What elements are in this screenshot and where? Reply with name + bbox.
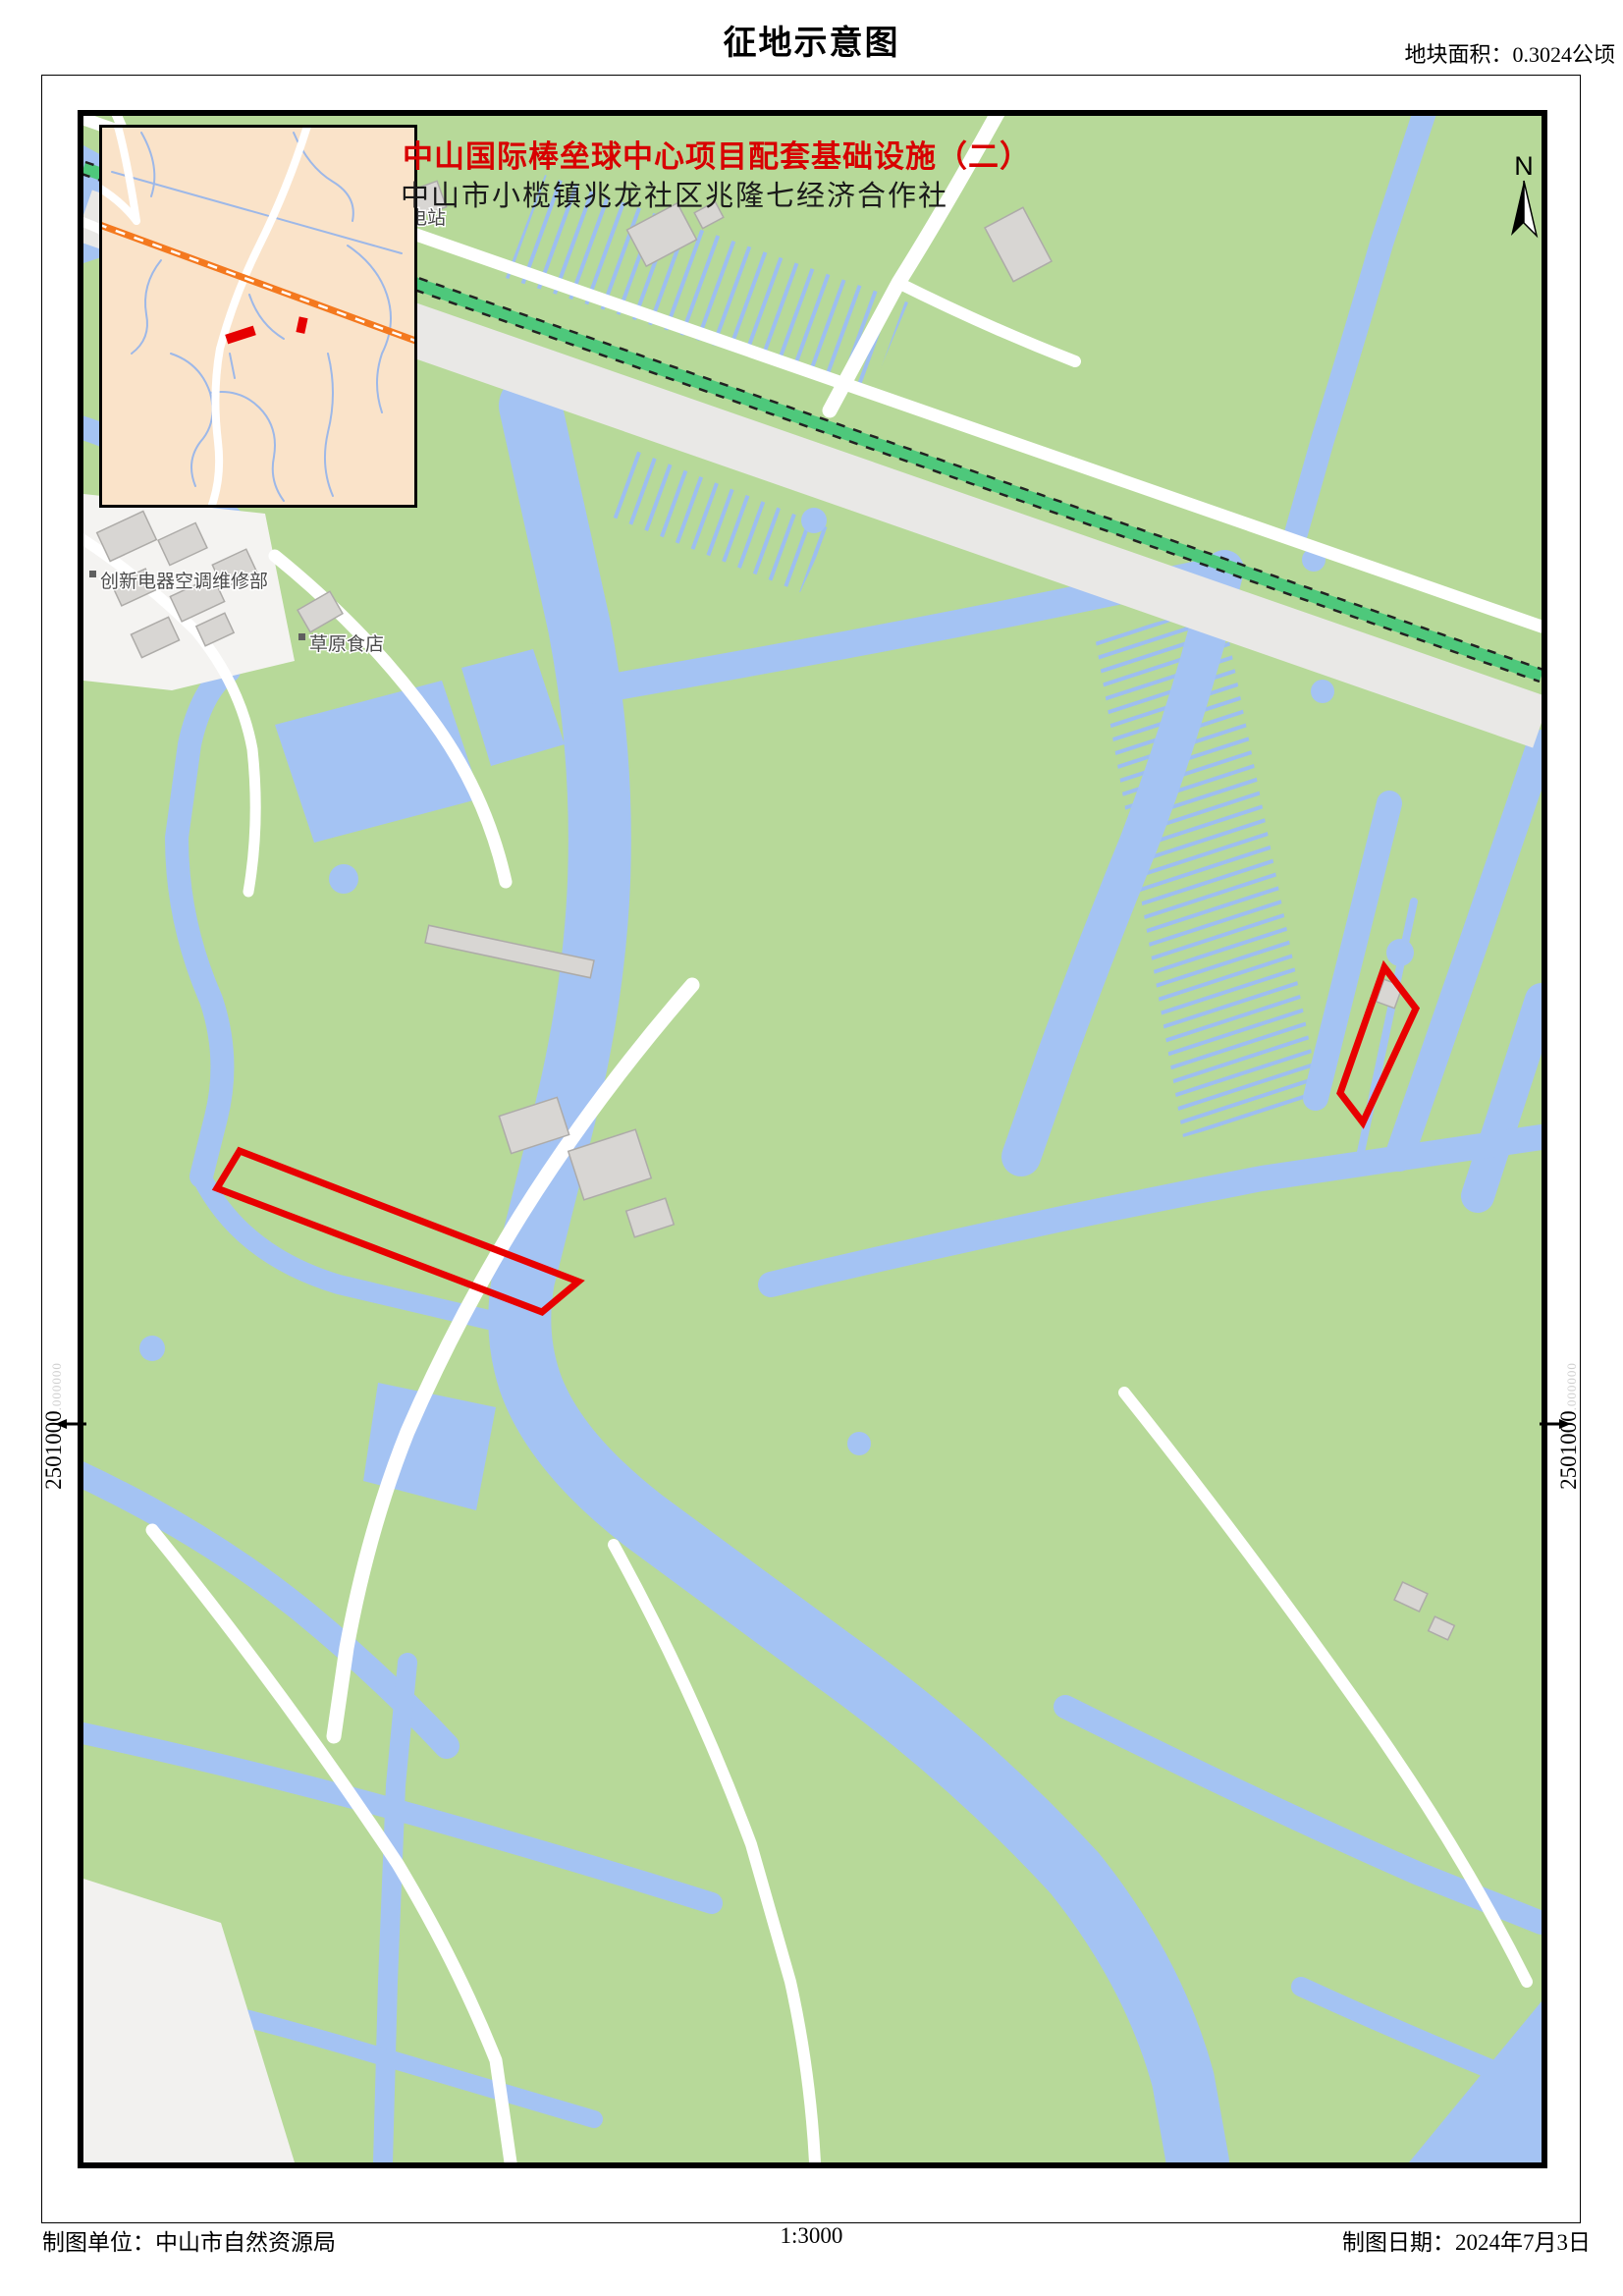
date-label: 制图日期：2024年7月3日 (1342, 2223, 1591, 2257)
north-label: N (1514, 151, 1534, 181)
page-title: 征地示意图 (0, 16, 1623, 64)
poi-marker (89, 571, 96, 577)
left-coordinate-label: 2501000.000000 (39, 1318, 69, 1534)
plot-area-label: 地块面积：0.3024公顷 (1404, 37, 1615, 69)
poi-label-food-store: 草原食店 (309, 633, 384, 655)
right-coordinate-decimal: .000000 (1564, 1362, 1579, 1410)
inset-svg (102, 128, 414, 505)
right-coordinate-label: 2501000.000000 (1554, 1318, 1584, 1534)
north-arrow: N (1492, 145, 1555, 244)
project-title: 中山国际棒垒球中心项目配套基础设施（二） (403, 132, 1031, 176)
project-subtitle: 中山市小榄镇兆龙社区兆隆七经济合作社 (401, 173, 948, 214)
poi-marker (298, 633, 305, 640)
right-coordinate-value: 2501000 (1556, 1410, 1581, 1490)
poi-label-repair-shop: 创新电器空调维修部 (100, 571, 268, 592)
left-coordinate-value: 2501000 (41, 1410, 66, 1490)
inset-locator-map (99, 125, 417, 508)
producer-label: 制图单位：中山市自然资源局 (42, 2223, 336, 2257)
left-coordinate-decimal: .000000 (49, 1362, 64, 1410)
north-arrow-left-half (1511, 181, 1524, 236)
north-arrow-right-half (1524, 181, 1537, 236)
